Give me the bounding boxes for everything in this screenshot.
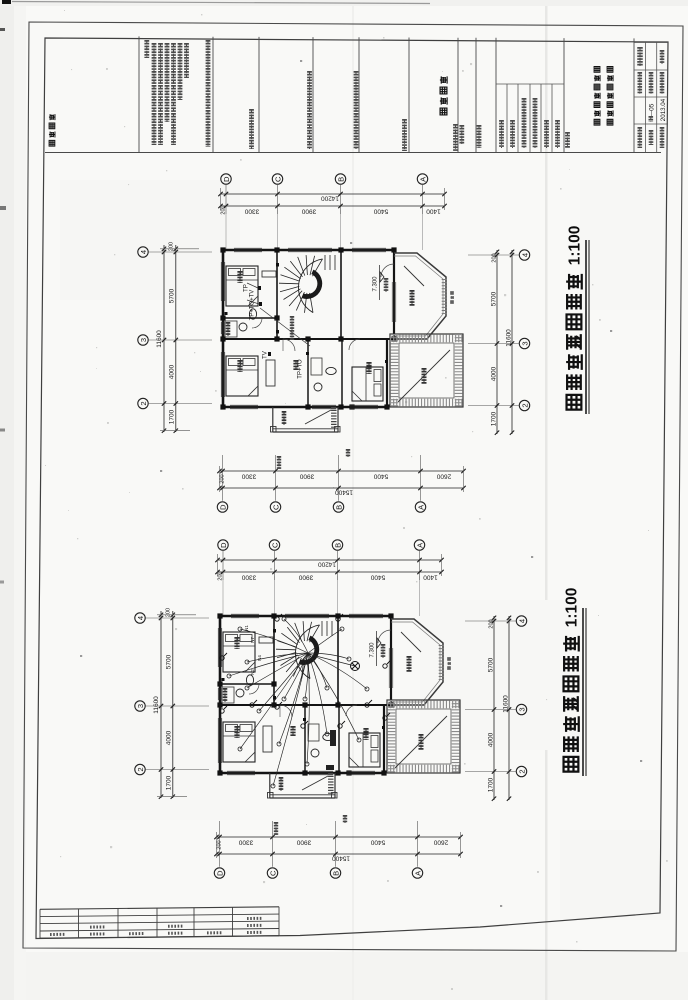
svg-text:7.300: 7.300	[370, 642, 376, 658]
svg-text:C: C	[270, 542, 279, 548]
svg-text:5700: 5700	[168, 288, 175, 303]
svg-text:200: 200	[492, 253, 498, 262]
svg-text:11600: 11600	[153, 696, 160, 714]
svg-text:5700: 5700	[491, 291, 498, 306]
svg-text:200: 200	[489, 619, 495, 628]
svg-text:2: 2	[139, 401, 148, 405]
svg-text:200: 200	[166, 608, 172, 617]
svg-text:D: D	[218, 504, 227, 510]
svg-text:2013.04: 2013.04	[660, 98, 667, 121]
svg-text:N4: N4	[257, 655, 262, 661]
svg-text:N1: N1	[244, 625, 249, 631]
svg-text:B: B	[331, 871, 340, 876]
svg-text:4000: 4000	[168, 364, 175, 379]
svg-text:5700: 5700	[488, 657, 495, 672]
svg-text:4: 4	[136, 616, 145, 620]
svg-text:N2: N2	[250, 669, 255, 675]
svg-text:1:100: 1:100	[567, 226, 584, 266]
svg-text:C: C	[273, 176, 282, 182]
svg-text:3: 3	[139, 338, 148, 342]
svg-text:3900: 3900	[296, 839, 311, 846]
svg-text:4: 4	[139, 250, 148, 254]
svg-text:11600: 11600	[156, 330, 163, 348]
svg-text:1:100: 1:100	[564, 588, 581, 628]
svg-text:3900: 3900	[298, 574, 313, 581]
svg-text:14200: 14200	[321, 195, 339, 202]
svg-text:B: B	[333, 543, 342, 548]
svg-text:15400: 15400	[335, 489, 353, 496]
svg-text:3300: 3300	[241, 574, 256, 581]
svg-text:5400: 5400	[373, 473, 388, 480]
svg-text:3: 3	[136, 704, 145, 708]
svg-text:4: 4	[517, 619, 526, 623]
svg-text:N7: N7	[250, 637, 255, 643]
svg-text:200: 200	[218, 571, 224, 580]
svg-text:14200: 14200	[318, 561, 336, 568]
svg-text:D: D	[215, 870, 224, 876]
svg-text:3: 3	[520, 341, 529, 345]
svg-text:B: B	[334, 505, 343, 510]
svg-text:1700: 1700	[488, 777, 495, 792]
svg-text:3: 3	[517, 707, 526, 711]
svg-text:2: 2	[520, 403, 529, 407]
svg-text:4000: 4000	[165, 730, 172, 745]
svg-text:1400: 1400	[423, 574, 438, 581]
svg-text:5400: 5400	[373, 208, 388, 215]
svg-text:11600: 11600	[506, 329, 513, 347]
svg-text:C: C	[268, 870, 277, 876]
svg-text:3300: 3300	[238, 839, 253, 846]
svg-text:1700: 1700	[165, 775, 172, 790]
svg-text:200: 200	[221, 205, 227, 214]
svg-text:4000: 4000	[491, 366, 498, 381]
svg-text:C: C	[271, 504, 280, 510]
svg-text:—05: —05	[649, 103, 656, 117]
svg-text:TP+TO+TV: TP+TO+TV	[250, 290, 256, 321]
svg-text:D: D	[222, 176, 231, 182]
svg-text:1700: 1700	[491, 411, 498, 426]
svg-text:11600: 11600	[503, 695, 510, 713]
svg-text:B: B	[336, 177, 345, 182]
svg-text:5700: 5700	[165, 654, 172, 669]
svg-text:2600: 2600	[436, 473, 451, 480]
svg-text:TV: TV	[262, 350, 269, 359]
svg-text:200: 200	[169, 242, 175, 251]
svg-text:4: 4	[520, 253, 529, 257]
svg-text:15400: 15400	[332, 855, 350, 862]
svg-text:200: 200	[217, 840, 223, 849]
svg-text:4000: 4000	[488, 732, 495, 747]
svg-text:TP+TO: TP+TO	[298, 359, 304, 379]
svg-text:3900: 3900	[299, 473, 314, 480]
svg-text:3300: 3300	[244, 208, 259, 215]
svg-text:2: 2	[136, 767, 145, 771]
svg-text:7.300: 7.300	[373, 276, 379, 292]
svg-text:3300: 3300	[241, 473, 256, 480]
svg-text:2: 2	[517, 769, 526, 773]
svg-text:3900: 3900	[301, 208, 316, 215]
svg-text:5400: 5400	[370, 574, 385, 581]
svg-text:D: D	[219, 542, 228, 548]
svg-text:1700: 1700	[168, 409, 175, 424]
svg-text:200: 200	[220, 474, 226, 483]
svg-text:5400: 5400	[370, 839, 385, 846]
svg-text:TP: TP	[243, 284, 250, 292]
svg-text:1400: 1400	[426, 208, 441, 215]
svg-text:2600: 2600	[433, 839, 448, 846]
